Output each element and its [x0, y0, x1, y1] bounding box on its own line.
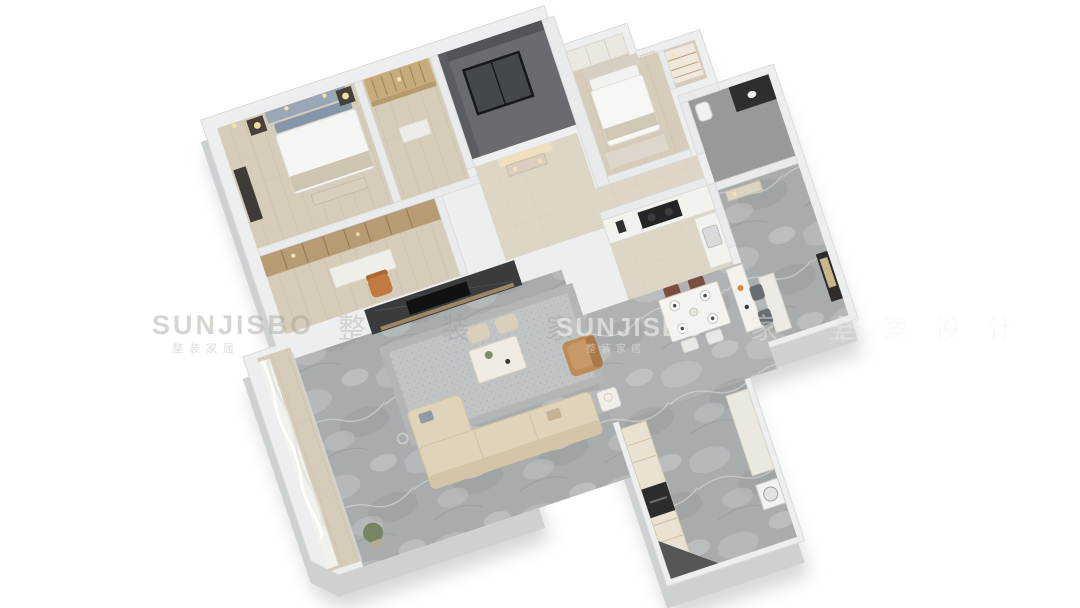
watermark-slogan-right-b: 全 案 设 计	[828, 314, 1024, 344]
watermark-brand-left-sub: 整装家居	[172, 341, 240, 355]
watermark-brand-left: SUNJISBO	[152, 310, 314, 340]
watermark-brand-mid: SUNJISBO	[556, 312, 705, 342]
floorplan-render: SUNJISBO 整装家居 整 装 家 SUNJISBO 整装家居 家 居 全 …	[0, 0, 1080, 608]
floorplan-svg: SUNJISBO 整装家居 整 装 家 SUNJISBO 整装家居 家 居 全 …	[0, 0, 1080, 608]
watermark-brand-mid-sub: 整装家居	[586, 342, 646, 355]
floorplan	[167, 0, 919, 608]
